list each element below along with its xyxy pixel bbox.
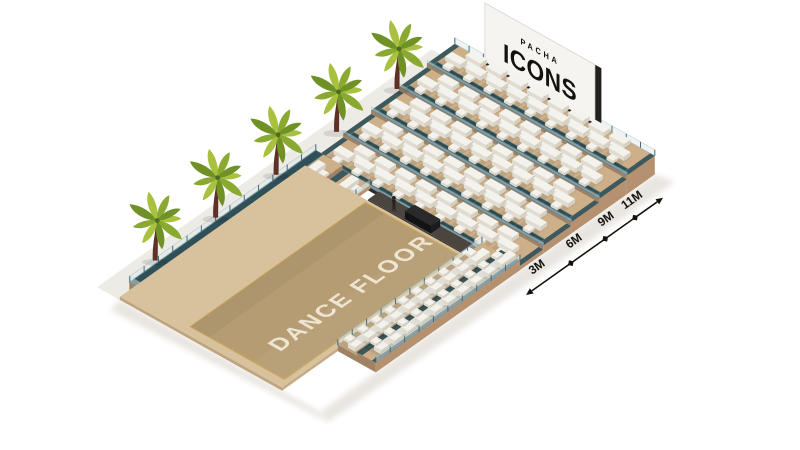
venue-map: PACHA ICONS DANCE FLOOR 3M 6M 9M 11M	[0, 0, 800, 450]
venue-scene-svg: PACHA ICONS DANCE FLOOR 3M 6M 9M 11M	[0, 0, 800, 450]
